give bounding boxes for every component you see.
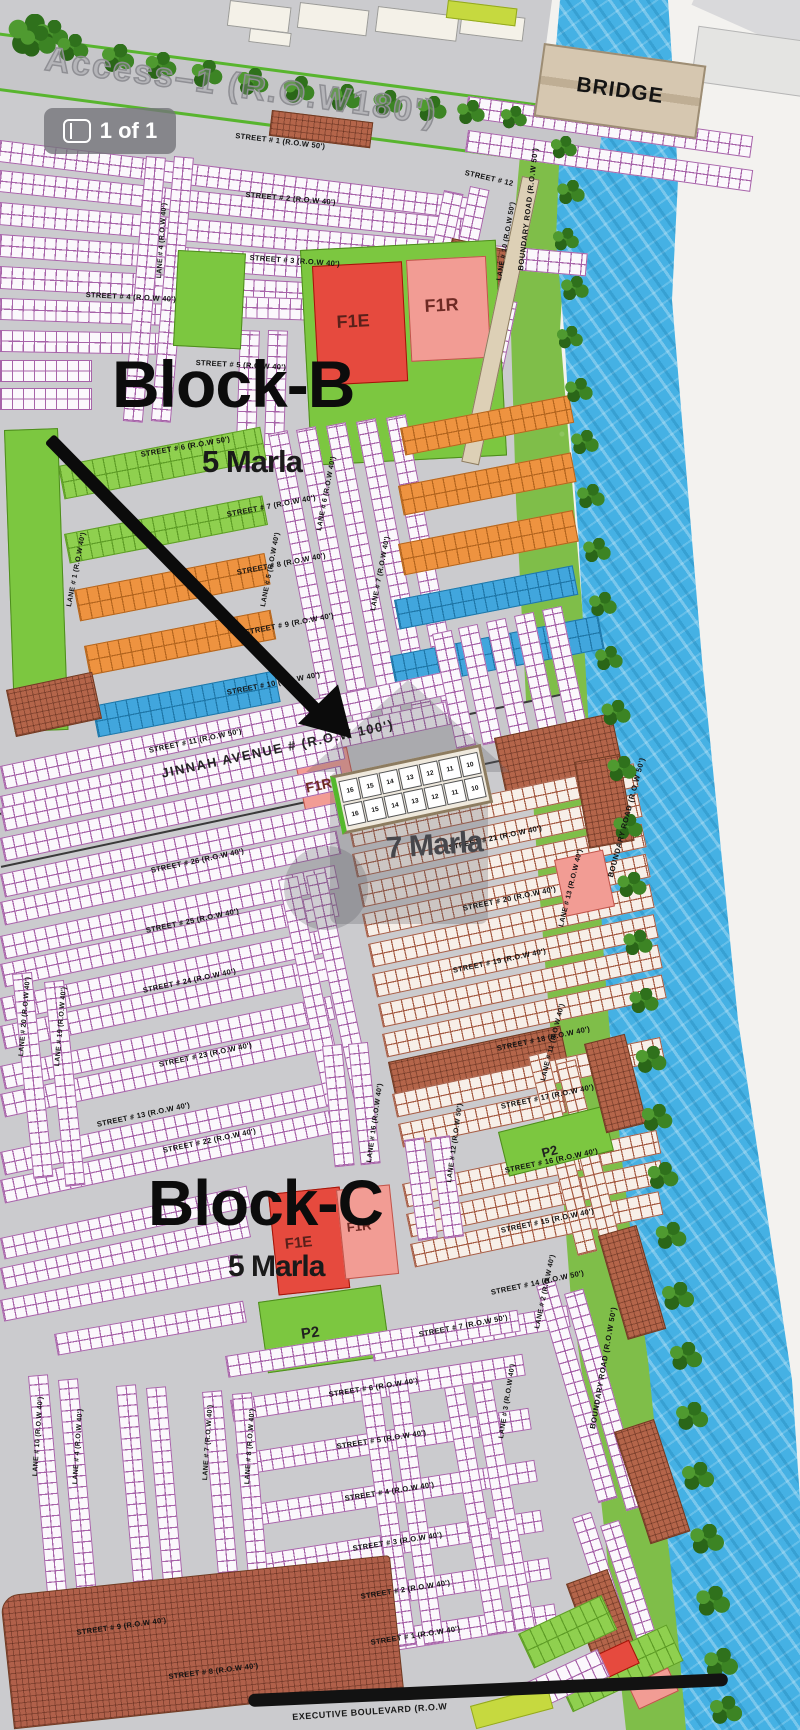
tree-icon: [642, 1162, 682, 1191]
tree-icon: [624, 988, 662, 1015]
zone-block: [173, 250, 246, 349]
tree-icon: [690, 1586, 734, 1618]
tree-icon: [552, 326, 586, 350]
tree-icon: [452, 100, 488, 126]
plot-number-cell: 10: [463, 775, 487, 801]
image-counter-text: 1 of 1: [100, 118, 157, 144]
tree-icon: [578, 538, 614, 564]
tree-icon: [596, 700, 634, 727]
tree-icon: [650, 1222, 690, 1251]
tree-icon: [584, 592, 620, 618]
zone-label: F1E: [336, 310, 370, 333]
tree-icon: [612, 872, 650, 899]
block-title-label: Block-C: [148, 1166, 383, 1240]
tree-icon: [552, 180, 588, 206]
zone-label: F1R: [424, 294, 459, 317]
tree-icon: [560, 378, 596, 404]
tree-icon: [546, 136, 580, 160]
tree-icon: [630, 1046, 670, 1075]
block-title-label: 5 Marla: [228, 1250, 324, 1284]
zone-label: P2: [300, 1323, 321, 1342]
tree-icon: [676, 1462, 718, 1492]
tree-icon: [566, 430, 602, 456]
block-title-label: Block-B: [112, 346, 354, 422]
tree-icon: [684, 1524, 728, 1556]
tree-icon: [704, 1696, 746, 1726]
tree-icon: [496, 106, 530, 130]
tree-icon: [618, 930, 656, 957]
tree-icon: [656, 1282, 698, 1312]
plot-number-cell: 10: [458, 752, 482, 778]
block-title-label: 7 Marla: [385, 825, 484, 866]
plot-map-image[interactable]: STREET # 1 (R.O.W 50')STREET # 2 (R.O.W …: [0, 0, 800, 1730]
image-counter-badge: 1 of 1: [44, 108, 176, 154]
block-title-label: 5 Marla: [202, 444, 302, 480]
gallery-icon: [63, 119, 91, 143]
tree-icon: [670, 1402, 712, 1432]
bridge-label: BRIDGE: [575, 73, 665, 109]
plot-row: [0, 360, 92, 382]
watermark-circle: [284, 846, 368, 930]
tree-icon: [590, 646, 626, 672]
tree-icon: [636, 1104, 676, 1133]
tree-icon: [664, 1342, 706, 1372]
tree-icon: [556, 276, 592, 302]
tree-icon: [572, 484, 608, 510]
tree-icon: [548, 228, 582, 252]
plot-row: [0, 388, 92, 410]
